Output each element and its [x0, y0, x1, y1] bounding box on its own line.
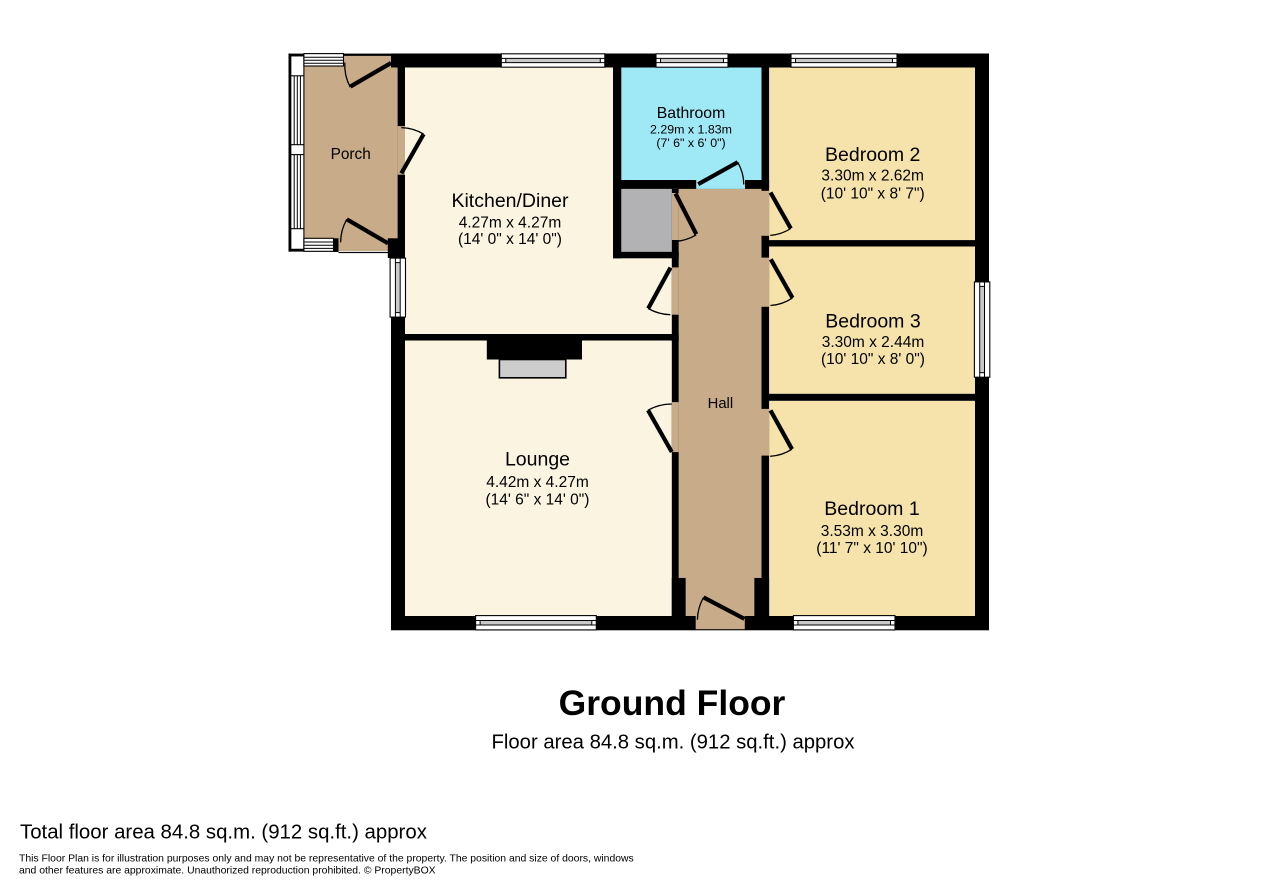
- svg-text:Lounge: Lounge: [505, 449, 570, 471]
- svg-text:(14' 0" x 14' 0"): (14' 0" x 14' 0"): [458, 231, 562, 248]
- svg-text:Total floor area 84.8 sq.m. (9: Total floor area 84.8 sq.m. (912 sq.ft.)…: [20, 822, 427, 844]
- svg-text:Ground Floor: Ground Floor: [559, 683, 786, 723]
- svg-text:Bedroom 1: Bedroom 1: [824, 498, 919, 520]
- svg-text:This Floor Plan is for illustr: This Floor Plan is for illustration purp…: [19, 854, 634, 865]
- svg-text:(7' 6" x 6' 0"): (7' 6" x 6' 0"): [656, 136, 725, 150]
- svg-text:(14' 6" x 14' 0"): (14' 6" x 14' 0"): [486, 492, 590, 509]
- svg-text:Porch: Porch: [331, 146, 371, 163]
- svg-text:(10' 10" x 8' 0"): (10' 10" x 8' 0"): [821, 351, 925, 368]
- svg-text:(10' 10" x 8' 7"): (10' 10" x 8' 7"): [821, 185, 925, 202]
- svg-text:3.30m x 2.62m: 3.30m x 2.62m: [821, 167, 924, 184]
- svg-text:Bathroom: Bathroom: [657, 105, 726, 122]
- svg-text:and other features are approxi: and other features are approximate. Unau…: [19, 866, 436, 877]
- svg-text:3.30m x 2.44m: 3.30m x 2.44m: [822, 334, 925, 351]
- svg-text:Kitchen/Diner: Kitchen/Diner: [451, 190, 569, 212]
- svg-text:4.27m x 4.27m: 4.27m x 4.27m: [459, 215, 562, 232]
- svg-text:Bedroom 2: Bedroom 2: [825, 144, 920, 166]
- svg-text:Hall: Hall: [708, 396, 734, 412]
- svg-text:Floor area 84.8 sq.m. (912 sq.: Floor area 84.8 sq.m. (912 sq.ft.) appro…: [492, 731, 855, 753]
- svg-text:4.42m x 4.27m: 4.42m x 4.27m: [486, 474, 589, 491]
- svg-text:Bedroom 3: Bedroom 3: [825, 311, 920, 333]
- svg-text:3.53m x 3.30m: 3.53m x 3.30m: [821, 523, 924, 540]
- svg-text:2.29m x 1.83m: 2.29m x 1.83m: [650, 123, 732, 137]
- svg-text:(11' 7" x 10' 10"): (11' 7" x 10' 10"): [816, 540, 927, 557]
